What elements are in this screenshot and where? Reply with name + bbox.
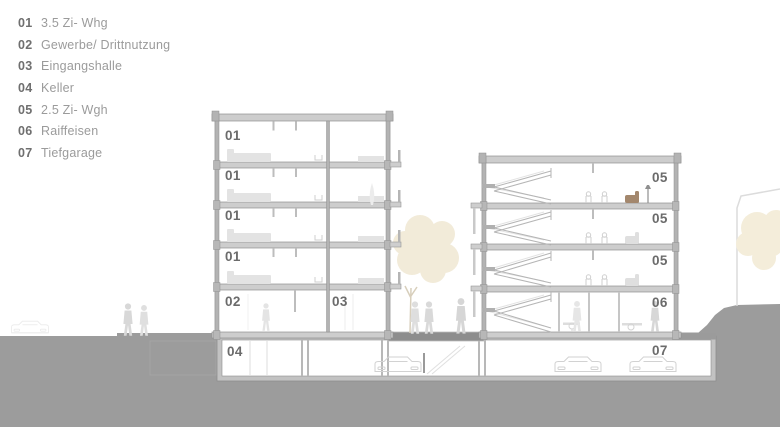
background-tree-icon	[736, 210, 780, 270]
legend-number: 03	[18, 56, 41, 78]
floor-label-01: 01	[225, 249, 241, 264]
legend-number: 02	[18, 35, 41, 57]
floor-label-01: 01	[225, 208, 241, 223]
floor-label-01: 01	[225, 168, 241, 183]
floor-label-06: 06	[652, 295, 668, 310]
legend-label: Eingangshalle	[41, 56, 122, 78]
legend-row: 07 Tiefgarage	[18, 143, 170, 165]
legend: 01 3.5 Zi- Whg 02 Gewerbe/ Drittnutzung …	[18, 13, 170, 165]
legend-number: 05	[18, 100, 41, 122]
person-icon	[123, 303, 132, 335]
legend-row: 04 Keller	[18, 78, 170, 100]
basement-garage: 04 07	[217, 336, 716, 381]
floor-label-07: 07	[652, 343, 668, 358]
legend-label: Raiffeisen	[41, 121, 98, 143]
garage-interior	[222, 340, 711, 376]
legend-label: Keller	[41, 78, 74, 100]
architectural-section-page: 04 07	[0, 0, 780, 427]
left-building-balconies	[390, 150, 401, 289]
right-slab-band	[678, 333, 716, 340]
courtyard	[393, 215, 466, 334]
legend-row: 03 Eingangshalle	[18, 56, 170, 78]
floor-label-05: 05	[652, 253, 668, 268]
left-building-body	[215, 115, 390, 338]
legend-label: Gewerbe/ Drittnutzung	[41, 35, 170, 57]
legend-row: 06 Raiffeisen	[18, 121, 170, 143]
person-icon	[456, 298, 466, 334]
legend-number: 04	[18, 78, 41, 100]
right-building: 05 05 05 06	[471, 153, 681, 340]
floor-label-05: 05	[652, 211, 668, 226]
legend-number: 07	[18, 143, 41, 165]
legend-row: 02 Gewerbe/ Drittnutzung	[18, 35, 170, 57]
floor-label-05: 05	[652, 170, 668, 185]
left-building: 01 01 01 01 02 03	[212, 111, 401, 340]
legend-label: Tiefgarage	[41, 143, 102, 165]
person-icon	[140, 305, 149, 336]
legend-number: 01	[18, 13, 41, 35]
floor-label-02: 02	[225, 294, 241, 309]
person-icon	[424, 301, 433, 333]
legend-row: 01 3.5 Zi- Whg	[18, 13, 170, 35]
legend-label: 2.5 Zi- Wgh	[41, 100, 108, 122]
person-icon	[410, 301, 419, 333]
floor-label-03: 03	[332, 294, 348, 309]
car-icon	[12, 321, 49, 333]
legend-row: 05 2.5 Zi- Wgh	[18, 100, 170, 122]
left-sidewalk	[12, 303, 149, 335]
legend-label: 3.5 Zi- Whg	[41, 13, 108, 35]
floor-label-01: 01	[225, 128, 241, 143]
courtyard-slab-band	[388, 332, 484, 341]
floor-label-04: 04	[227, 344, 243, 359]
right-building-balconies	[471, 203, 482, 317]
legend-number: 06	[18, 121, 41, 143]
